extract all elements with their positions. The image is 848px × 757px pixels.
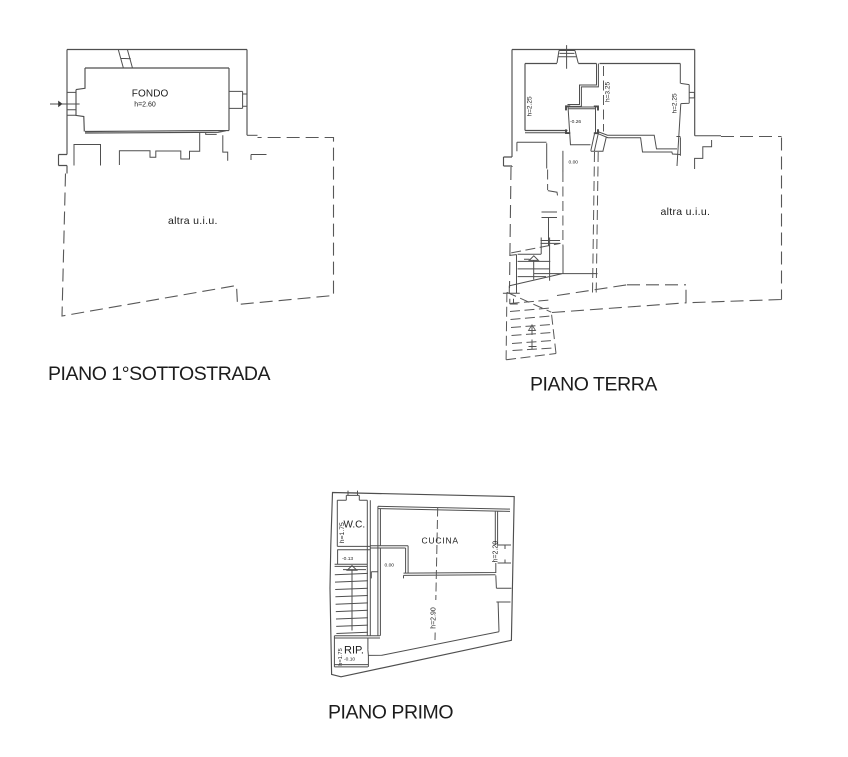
svg-text:PIANO TERRA: PIANO TERRA xyxy=(530,374,657,396)
svg-text:h=1.75: h=1.75 xyxy=(338,648,344,666)
svg-text:altra u.i.u.: altra u.i.u. xyxy=(168,215,218,227)
svg-text:-0.10: -0.10 xyxy=(344,657,355,663)
svg-text:0.00: 0.00 xyxy=(569,160,579,166)
svg-text:PIANO 1°SOTTOSTRADA: PIANO 1°SOTTOSTRADA xyxy=(48,363,271,385)
svg-text:PIANO PRIMO: PIANO PRIMO xyxy=(328,702,453,724)
svg-text:-0.13: -0.13 xyxy=(342,556,353,562)
svg-text:RIP.: RIP. xyxy=(344,645,364,657)
svg-text:0.00: 0.00 xyxy=(385,562,395,568)
svg-text:h=2.60: h=2.60 xyxy=(134,102,156,109)
svg-text:FONDO: FONDO xyxy=(132,89,169,100)
svg-text:h=2.25: h=2.25 xyxy=(527,96,534,116)
svg-text:CUCINA: CUCINA xyxy=(422,536,459,546)
svg-text:h=2.20: h=2.20 xyxy=(493,541,500,563)
svg-text:W.C.: W.C. xyxy=(344,520,366,531)
svg-text:altra u.i.u.: altra u.i.u. xyxy=(661,206,711,218)
svg-text:h=2.25: h=2.25 xyxy=(672,93,679,113)
svg-text:-0.26: -0.26 xyxy=(570,119,581,125)
svg-text:h=1.75: h=1.75 xyxy=(339,522,346,543)
svg-text:h=3.25: h=3.25 xyxy=(605,82,612,102)
svg-text:h=2.90: h=2.90 xyxy=(431,607,438,629)
